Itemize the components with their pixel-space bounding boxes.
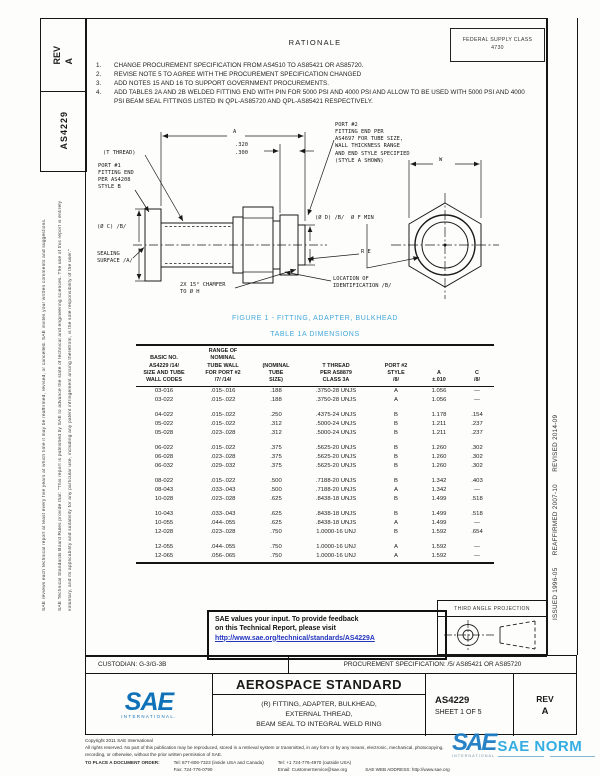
label-t-thread: (T THREAD) (103, 150, 135, 157)
sheet-number: SHEET 1 OF 5 (435, 709, 513, 716)
corner-rev-box: REV A AS4229 (40, 18, 87, 172)
cell-wall-range: .056-.065 (192, 552, 254, 563)
rationale-list: 1. CHANGE PROCUREMENT SPECIFICATION FROM… (96, 62, 528, 107)
cell-thread: .8438-18 UNJS (298, 495, 374, 504)
cell-style: A (374, 396, 418, 405)
cell-thread: 1.0000-16 UNJ (298, 528, 374, 537)
margin-disclaimer-3: SAE reviews each technical report at lea… (42, 175, 51, 611)
cell-style: B (374, 453, 418, 462)
cell-thread: .5625-20 UNJS (298, 438, 374, 453)
cell-style: B (374, 429, 418, 438)
table-row: 06-022 .015-.022 .375 .5625-20 UNJS B 1.… (136, 438, 494, 453)
table-row: 08-022 .015-.022 .500 .7188-20 UNJS B 1.… (136, 471, 494, 486)
cell-basic-no: 06-032 (136, 462, 192, 471)
cell-c: — (460, 519, 494, 528)
standard-type: AEROSPACE STANDARD (213, 674, 425, 695)
cell-c: .518 (460, 495, 494, 504)
cell-wall-range: .029-.032 (192, 462, 254, 471)
table-row: 12-028 .023-.028 .750 1.0000-16 UNJ B 1.… (136, 528, 494, 537)
cell-thread: .5000-24 UNJS (298, 420, 374, 429)
label-dim-320: .320 (235, 142, 248, 149)
cell-style: A (374, 519, 418, 528)
title-block: CUSTODIAN: G-3/G-3B PROCUREMENT SPECIFIC… (85, 655, 577, 735)
col-c: C /8/ (460, 345, 494, 387)
table-row: 05-022 .015-.022 .312 .5000-24 UNJS B 1.… (136, 420, 494, 429)
cell-tube-size: .188 (254, 396, 298, 405)
figure-caption: FIGURE 1 - FITTING, ADAPTER, BULKHEAD (85, 315, 545, 322)
label-port2: PORT #2 FITTING END PER AS4697 FOR TUBE … (335, 122, 410, 165)
sae-logo-subtext: INTERNATIONAL. (121, 714, 177, 719)
order-label: TO PLACE A DOCUMENT ORDER: (85, 760, 160, 765)
col-a: A ±.010 (418, 345, 460, 387)
table-row: 05-028 .023-.028 .312 .5000-24 UNJS B 1.… (136, 429, 494, 438)
cell-a: 1.592 (418, 537, 460, 552)
cell-basic-no: 05-028 (136, 429, 192, 438)
third-angle-projection-box: THIRD ANGLE PROJECTION (437, 600, 547, 655)
rev-label: REV (536, 694, 553, 704)
col-tube-wall-range: RANGE OF NOMINAL TUBE WALL FOR PORT #2 /… (192, 345, 254, 387)
col-t-thread: T THREAD PER AS8879 CLASS 3A (298, 345, 374, 387)
cell-style: A (374, 537, 418, 552)
cell-c: — (460, 486, 494, 495)
watermark-sae-glyph-icon: SAE (452, 733, 495, 753)
label-dia-d: (Ø D) /B/ (315, 215, 344, 222)
cell-basic-no: 10-043 (136, 504, 192, 519)
cell-thread: .7188-20 UNJS (298, 471, 374, 486)
table-row: 06-028 .023-.028 .375 .5625-20 UNJS B 1.… (136, 453, 494, 462)
cell-tube-size: .312 (254, 420, 298, 429)
cell-basic-no: 04-022 (136, 405, 192, 420)
cell-tube-size: .375 (254, 462, 298, 471)
cell-c: .237 (460, 429, 494, 438)
cell-style: A (374, 552, 418, 563)
cell-c: — (460, 387, 494, 396)
cell-wall-range: .023-.028 (192, 453, 254, 462)
cell-tube-size: .750 (254, 537, 298, 552)
rationale-item: 1. CHANGE PROCUREMENT SPECIFICATION FROM… (96, 62, 528, 71)
table-row: 06-032 .029-.032 .375 .5625-20 UNJS B 1.… (136, 462, 494, 471)
projection-symbol-icon (438, 617, 545, 654)
label-sealing-surface: SEALING SURFACE /A/ (97, 251, 133, 265)
cell-a: 1.178 (418, 405, 460, 420)
side-view (133, 207, 327, 283)
cell-thread: .5625-20 UNJS (298, 462, 374, 471)
cell-a: 1.056 (418, 396, 460, 405)
watermark-text: SAE NORM (497, 740, 582, 754)
end-view (391, 193, 499, 299)
web-address: SAE WEB ADDRESS: http://www.sae.org (365, 767, 450, 774)
watermark-subtext: INTERNATIONAL (452, 754, 495, 758)
feedback-line1: SAE values your input. To provide feedba… (215, 615, 439, 624)
cell-basic-no: 12-055 (136, 537, 192, 552)
procurement-spec-cell: PROCUREMENT SPECIFICATION: /5/ AS85421 O… (289, 656, 576, 673)
corner-doc-number: AS4229 (59, 111, 69, 150)
cell-thread: .5000-24 UNJS (298, 429, 374, 438)
cell-c: .237 (460, 420, 494, 429)
label-port1: PORT #1 FITTING END PER AS4208 STYLE B (98, 163, 134, 192)
cell-wall-range: .015-.022 (192, 471, 254, 486)
label-dim-w: W (437, 157, 444, 164)
cell-wall-range: .015-.022 (192, 438, 254, 453)
figure-1: (T THREAD) PORT #1 FITTING END PER AS420… (95, 118, 545, 314)
rationale-title: RATIONALE (85, 38, 545, 47)
cell-wall-range: .015-.016 (192, 387, 254, 396)
cell-style: B (374, 471, 418, 486)
cell-tube-size: .312 (254, 429, 298, 438)
cell-tube-size: .625 (254, 504, 298, 519)
cell-c: .518 (460, 504, 494, 519)
table-header-row: BASIC NO. AS4229 /14/ SIZE AND TUBE WALL… (136, 345, 494, 387)
table-row: 12-065 .056-.065 .750 1.0000-16 UNJ A 1.… (136, 552, 494, 563)
cell-thread: .8438-18 UNJS (298, 519, 374, 528)
rev-cell: REV A (514, 674, 576, 736)
tel-outside: Tel: +1 724-776-4970 (outside USA) (278, 760, 351, 767)
rationale-item: 3. ADD NOTES 15 AND 16 TO SUPPORT GOVERN… (96, 80, 528, 89)
standard-title-line1: (R) FITTING, ADAPTER, BULKHEAD, (261, 700, 377, 710)
cell-style: B (374, 495, 418, 504)
doc-number-cell: AS4229 SHEET 1 OF 5 (426, 674, 514, 736)
cell-tube-size: .625 (254, 519, 298, 528)
cell-wall-range: .044-.055 (192, 537, 254, 552)
dimensions-table-body: 03-016 .015-.016 .188 .3750-28 UNJS A 1.… (136, 387, 494, 563)
cell-thread: 1.0000-16 UNJ (298, 552, 374, 563)
table-row: 08-043 .033-.043 .500 .7188-20 UNJS A 1.… (136, 486, 494, 495)
cell-a: 1.342 (418, 471, 460, 486)
standard-title-cell: AEROSPACE STANDARD (R) FITTING, ADAPTER,… (213, 674, 426, 736)
rationale-item: 4. ADD TABLES 2A AND 2B WELDED FITTING E… (96, 89, 528, 107)
cell-thread: .3750-28 UNJS (298, 396, 374, 405)
tel-inside: Tel: 877-606-7323 (inside USA and Canada… (174, 760, 264, 767)
cell-basic-no: 10-028 (136, 495, 192, 504)
cell-a: 1.260 (418, 438, 460, 453)
cell-c: — (460, 537, 494, 552)
cell-style: B (374, 462, 418, 471)
margin-disclaimer-1: SAE Technical Standards Board Rules prov… (58, 175, 67, 611)
cell-a: 1.499 (418, 504, 460, 519)
cell-style: B (374, 420, 418, 429)
cell-basic-no: 05-022 (136, 420, 192, 429)
table-row: 10-043 .033-.043 .625 .8438-18 UNJS B 1.… (136, 504, 494, 519)
label-dia-c: (Ø C) /B/ (97, 224, 126, 231)
feedback-link[interactable]: http://www.sae.org/technical/standards/A… (215, 635, 375, 642)
cell-basic-no: 06-028 (136, 453, 192, 462)
label-identification: LOCATION OF IDENTIFICATION /B/ (333, 276, 391, 290)
col-port2-style: PORT #2 STYLE /8/ (374, 345, 418, 387)
cell-tube-size: .750 (254, 528, 298, 537)
cell-a: 1.499 (418, 519, 460, 528)
cell-c: — (460, 396, 494, 405)
email-address: Email: CustomerService@sae.org (278, 767, 351, 774)
cell-tube-size: .750 (254, 552, 298, 563)
cell-wall-range: .033-.043 (192, 486, 254, 495)
cell-basic-no: 12-065 (136, 552, 192, 563)
cell-tube-size: .500 (254, 486, 298, 495)
col-nominal-tube-size: (NOMINAL TUBE SIZE) (254, 345, 298, 387)
cell-thread: 1.0000-16 UNJ (298, 537, 374, 552)
cell-tube-size: .500 (254, 471, 298, 486)
revision-history: ISSUED 1996-05 REAFFIRMED 2007-10 REVISE… (552, 388, 566, 620)
cell-basic-no: 10-055 (136, 519, 192, 528)
cell-tube-size: .375 (254, 453, 298, 462)
cell-thread: .4375-24 UNJS (298, 405, 374, 420)
cell-thread: .3750-28 UNJS (298, 387, 374, 396)
rationale-item: 2. REVISE NOTE 5 TO AGREE WITH THE PROCU… (96, 71, 528, 80)
cell-thread: .8438-18 UNJS (298, 504, 374, 519)
cell-thread: .7188-20 UNJS (298, 486, 374, 495)
cell-style: B (374, 504, 418, 519)
cell-style: A (374, 387, 418, 396)
cell-basic-no: 06-022 (136, 438, 192, 453)
sae-logo: SAE INTERNATIONAL. (86, 674, 213, 736)
cell-wall-range: .023-.028 (192, 495, 254, 504)
label-dia-f: Ø F MIN (351, 215, 374, 222)
sae-logo-text: SAE (125, 691, 173, 714)
cell-wall-range: .033-.043 (192, 504, 254, 519)
saenorm-watermark: SAE SAE NORM INTERNATIONAL (452, 733, 598, 758)
cell-a: 1.499 (418, 495, 460, 504)
cell-a: 1.592 (418, 528, 460, 537)
cell-c: .302 (460, 453, 494, 462)
cell-c: — (460, 552, 494, 563)
cell-a: 1.211 (418, 429, 460, 438)
cell-a: 1.260 (418, 462, 460, 471)
cell-a: 1.211 (418, 420, 460, 429)
fax-number: Fax: 724-776-0790 (174, 767, 264, 774)
cell-c: .654 (460, 528, 494, 537)
cell-wall-range: .015-.022 (192, 405, 254, 420)
cell-a: 1.342 (418, 486, 460, 495)
feedback-line2: on this Technical Report, please visit (215, 624, 439, 633)
label-dim-a: A (231, 129, 238, 136)
cell-basic-no: 08-022 (136, 471, 192, 486)
table-row: 03-016 .015-.016 .188 .3750-28 UNJS A 1.… (136, 387, 494, 396)
label-r-e: R E (361, 249, 371, 256)
cell-basic-no: 03-022 (136, 396, 192, 405)
feedback-box: SAE values your input. To provide feedba… (207, 610, 447, 660)
margin-disclaimer-2: voluntary, and its applicability and sui… (68, 175, 77, 611)
standard-title-line2: EXTERNAL THREAD, (285, 710, 352, 720)
rev-value: A (542, 706, 549, 717)
cell-style: B (374, 438, 418, 453)
cell-a: 1.260 (418, 453, 460, 462)
cell-tube-size: .250 (254, 405, 298, 420)
cell-style: B (374, 405, 418, 420)
watermark-rule (498, 756, 543, 757)
right-column-rule-outer (577, 18, 578, 655)
custodian-cell: CUSTODIAN: G-3/G-3B (86, 656, 289, 673)
cell-basic-no: 12-028 (136, 528, 192, 537)
cell-basic-no: 08-043 (136, 486, 192, 495)
label-chamfer: 2X 15° CHAMFER TO Ø H (180, 282, 225, 296)
doc-number: AS4229 (435, 695, 513, 706)
cell-wall-range: .015-.022 (192, 396, 254, 405)
cell-c: .302 (460, 462, 494, 471)
cell-style: A (374, 486, 418, 495)
label-dim-300: .300 (235, 150, 248, 157)
right-column-rule-inner (547, 18, 548, 655)
table-row: 12-055 .044-.055 .750 1.0000-16 UNJ A 1.… (136, 537, 494, 552)
watermark-rule2 (550, 756, 595, 757)
col-basic-no: BASIC NO. AS4229 /14/ SIZE AND TUBE WALL… (136, 345, 192, 387)
cell-wall-range: .023-.028 (192, 429, 254, 438)
cell-c: .302 (460, 438, 494, 453)
cell-wall-range: .015-.022 (192, 420, 254, 429)
cell-tube-size: .625 (254, 495, 298, 504)
document-page: SAE reviews each technical report at lea… (0, 0, 600, 776)
cell-style: B (374, 528, 418, 537)
table-caption: TABLE 1A DIMENSIONS (85, 331, 545, 338)
cell-a: 1.592 (418, 552, 460, 563)
standard-title-line3: BEAM SEAL TO INTEGRAL WELD RING (256, 720, 381, 730)
cell-c: .154 (460, 405, 494, 420)
cell-thread: .5625-20 UNJS (298, 453, 374, 462)
table-row: 10-028 .023-.028 .625 .8438-18 UNJS B 1.… (136, 495, 494, 504)
table-row: 03-022 .015-.022 .188 .3750-28 UNJS A 1.… (136, 396, 494, 405)
cell-basic-no: 03-016 (136, 387, 192, 396)
cell-c: .403 (460, 471, 494, 486)
projection-label: THIRD ANGLE PROJECTION (438, 601, 546, 617)
table-row: 04-022 .015-.022 .250 .4375-24 UNJS B 1.… (136, 405, 494, 420)
cell-a: 1.056 (418, 387, 460, 396)
dimensions-table: BASIC NO. AS4229 /14/ SIZE AND TUBE WALL… (136, 344, 494, 564)
cell-tube-size: .188 (254, 387, 298, 396)
corner-rev-label: REV A (51, 46, 75, 65)
table-row: 10-055 .044-.055 .625 .8438-18 UNJS A 1.… (136, 519, 494, 528)
cell-tube-size: .375 (254, 438, 298, 453)
cell-wall-range: .044-.055 (192, 519, 254, 528)
cell-wall-range: .023-.028 (192, 528, 254, 537)
